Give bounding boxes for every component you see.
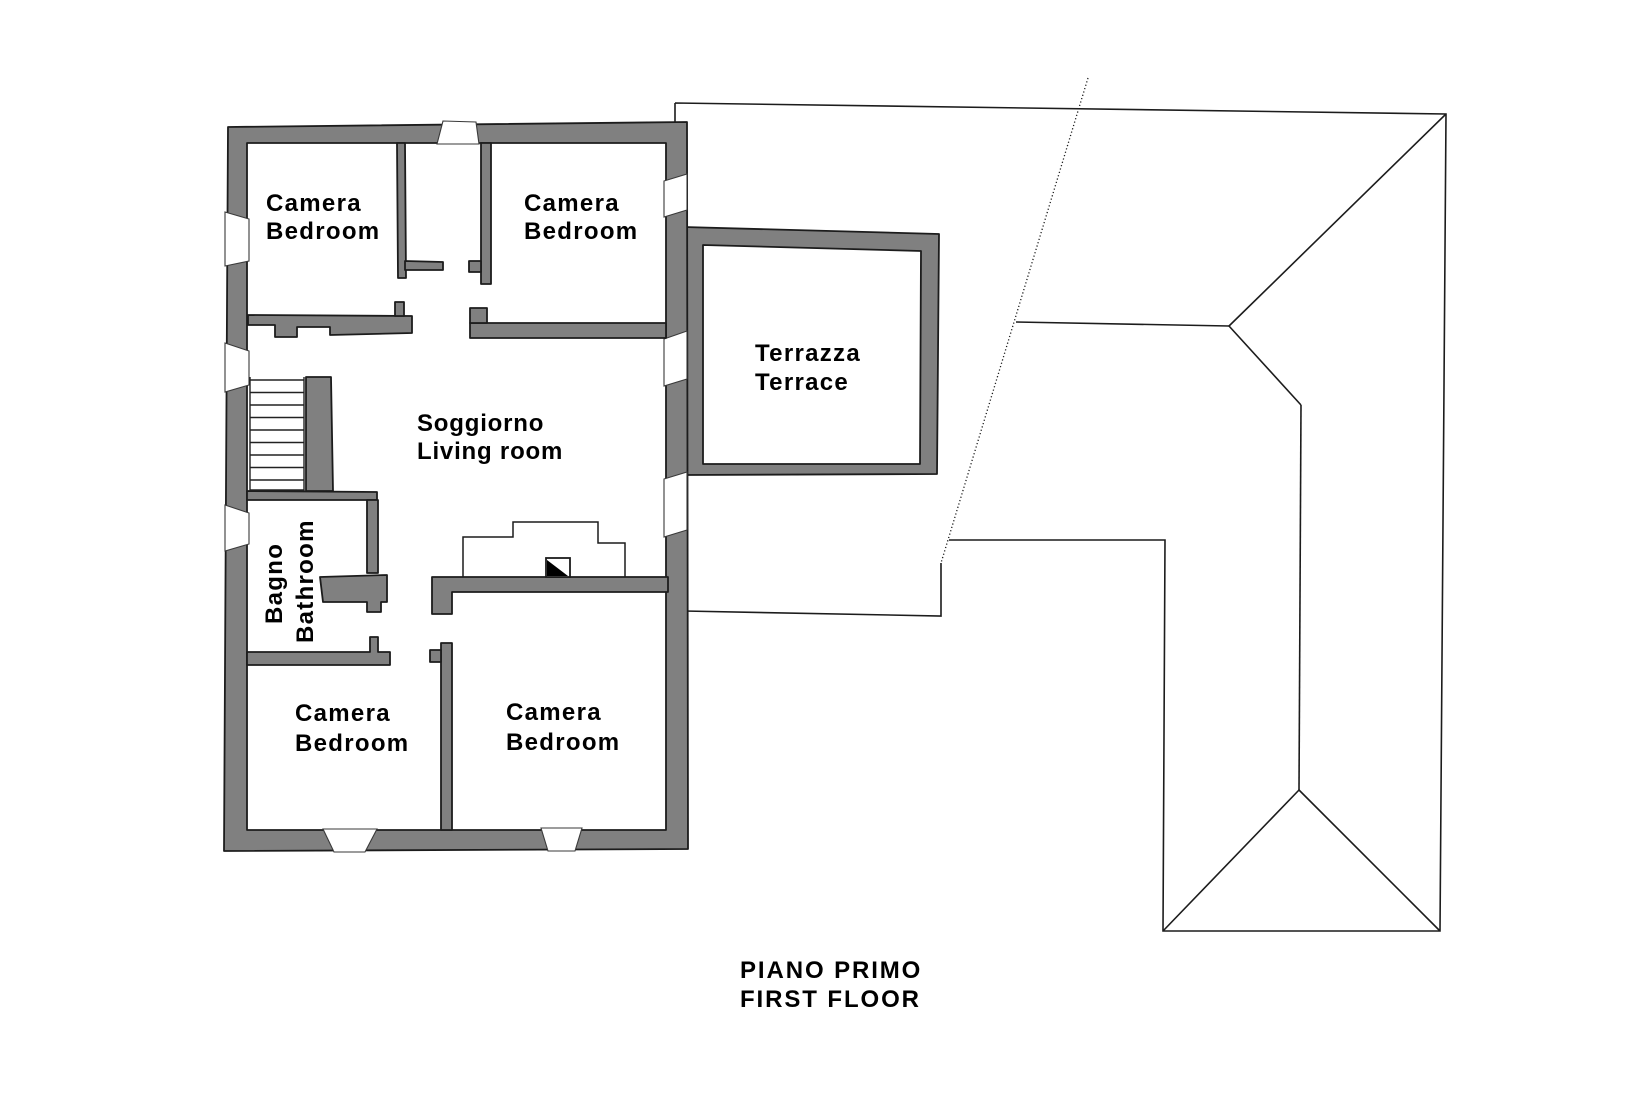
svg-text:Bedroom: Bedroom (506, 729, 620, 756)
svg-text:Terrace: Terrace (755, 369, 849, 396)
svg-text:Bedroom: Bedroom (524, 218, 638, 245)
svg-text:Bathroom: Bathroom (292, 519, 319, 643)
svg-text:Soggiorno: Soggiorno (417, 410, 544, 437)
svg-text:Living room: Living room (417, 438, 563, 465)
svg-text:FIRST FLOOR: FIRST FLOOR (740, 986, 921, 1013)
svg-text:PIANO PRIMO: PIANO PRIMO (740, 957, 922, 984)
svg-text:Camera: Camera (506, 699, 602, 726)
svg-text:Bedroom: Bedroom (266, 218, 380, 245)
svg-text:Bagno: Bagno (261, 543, 288, 624)
svg-text:Camera: Camera (524, 190, 620, 217)
svg-text:Camera: Camera (266, 190, 362, 217)
svg-text:Bedroom: Bedroom (295, 730, 409, 757)
svg-text:Terrazza: Terrazza (755, 340, 861, 367)
svg-text:Camera: Camera (295, 700, 391, 727)
